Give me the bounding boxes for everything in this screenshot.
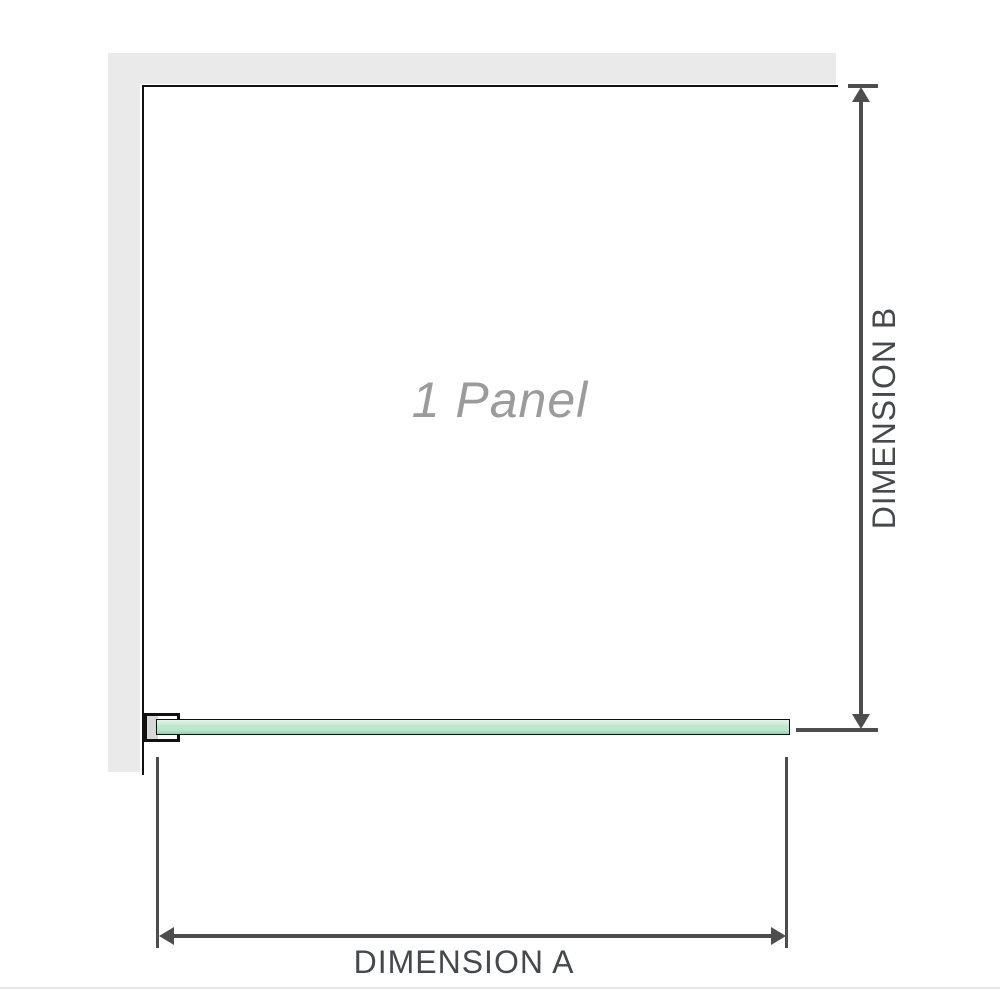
dimension-a-left-extension [156, 757, 159, 948]
dimension-b-line [859, 97, 863, 717]
wall-top-bar [108, 53, 836, 84]
dimension-a-label: DIMENSION A [314, 944, 614, 980]
panel-count-label: 1 Panel [340, 370, 660, 430]
arrow-up-icon [852, 87, 870, 102]
shower-screen-diagram: 1 Panel DIMENSION B DIMENSION A [0, 0, 1000, 1000]
arrow-left-icon [159, 927, 174, 945]
dimension-a-right-extension [785, 757, 788, 948]
enclosure-outline [142, 85, 838, 775]
glass-panel [156, 719, 790, 735]
dimension-a-line [172, 934, 773, 938]
bottom-divider [0, 987, 1000, 989]
arrow-right-icon [771, 927, 786, 945]
wall-left-bar [108, 53, 140, 772]
dimension-b-label: DIMENSION B [866, 268, 902, 568]
arrow-down-icon [852, 714, 870, 729]
